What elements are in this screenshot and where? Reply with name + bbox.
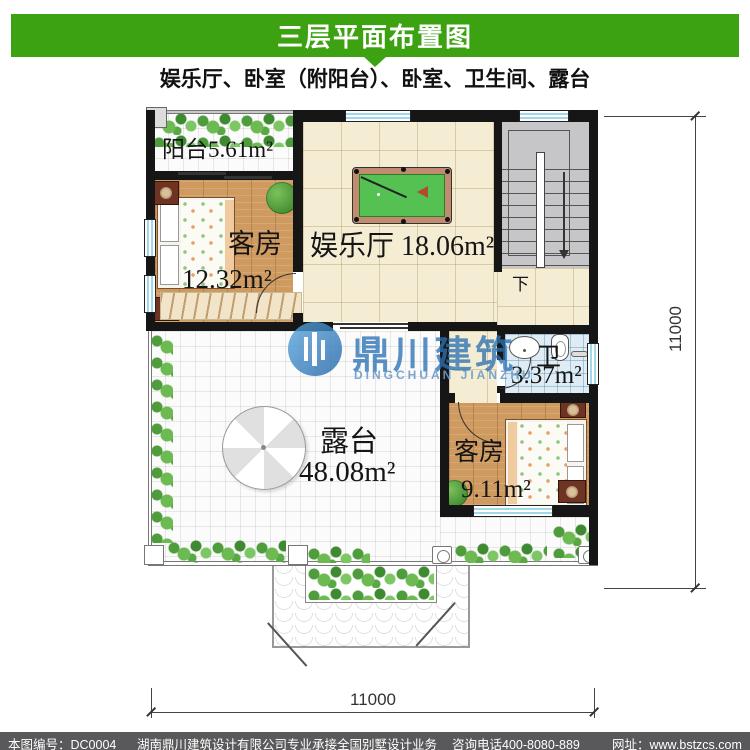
bathroom-window xyxy=(587,343,599,385)
guest1-window-2 xyxy=(144,275,156,313)
wall-guest1-bottom xyxy=(146,322,303,331)
guest1-window-1 xyxy=(144,219,156,257)
bathroom-faucet xyxy=(571,351,588,357)
pool-ball-rack xyxy=(417,186,428,198)
wall-guest1-right-upper xyxy=(293,110,303,272)
floor-plan-page: 三层平面布置图 娱乐厅、卧室（附阳台）、卧室、卫生间、露台 xyxy=(0,0,750,750)
terrace-greenery-bottom-left xyxy=(168,540,286,563)
header-bar: 三层平面布置图 xyxy=(11,14,739,57)
footer-code: 本图编号：DC0004 xyxy=(8,734,116,750)
pool-table xyxy=(352,167,452,224)
stairs-down-label: 下 xyxy=(512,270,529,295)
guest2-window xyxy=(473,505,553,517)
guest1-pillow-2 xyxy=(160,245,179,285)
stairs-arrow-head xyxy=(559,250,569,259)
footer-company: 湖南鼎川建筑设计有限公司专业承接全国别墅设计业务 xyxy=(137,734,437,750)
terrace-name: 露台 xyxy=(320,418,378,460)
guest1-name: 客房 xyxy=(228,222,282,261)
wall-stairs-left xyxy=(494,110,502,272)
page-subtitle: 娱乐厅、卧室（附阳台）、卧室、卫生间、露台 xyxy=(0,63,750,93)
balcony-slider-leaf-2 xyxy=(224,176,272,179)
hall-label: 娱乐厅 18.06m² xyxy=(310,224,494,264)
dim-right-label: 11000 xyxy=(666,306,686,352)
guest2-pillow-1 xyxy=(567,424,584,462)
wall-right xyxy=(589,110,598,565)
stairs-railing xyxy=(536,152,545,268)
footer-phone: 咨询电话400-8080-889 xyxy=(452,734,580,750)
terrace-greenery-left xyxy=(151,333,173,543)
terrace-greenery-bottom-mid xyxy=(308,546,370,563)
balcony-railing-top xyxy=(150,110,296,114)
hall-area: 18.06m² xyxy=(401,231,494,262)
footer-website: 网址：www.bstzcs.com xyxy=(612,734,742,750)
dim-bottom-label: 11000 xyxy=(350,690,396,710)
hall-name: 娱乐厅 xyxy=(310,231,394,262)
terrace-area: 48.08m² xyxy=(299,456,396,489)
dim-bottom-ext-right xyxy=(594,688,595,718)
wall-guest2-top-right xyxy=(500,393,598,403)
terrace-post-1 xyxy=(144,545,164,565)
stairs-treads-left xyxy=(497,158,536,268)
umbrella-center xyxy=(261,445,266,450)
watermark-logo-icon xyxy=(288,322,342,376)
guest2-nightstand-1 xyxy=(560,401,586,418)
stairs-window xyxy=(519,110,569,122)
wall-guest2-top-left xyxy=(440,393,455,403)
balcony-slider-leaf-1 xyxy=(178,172,226,175)
guest2-name: 客房 xyxy=(454,432,504,468)
terrace-greenery-bottom-right xyxy=(455,543,547,563)
cue-ball xyxy=(377,193,380,196)
porch-greenery xyxy=(308,566,434,600)
guest1-area: 12.32m² xyxy=(182,264,272,295)
dim-right-ext-bottom xyxy=(604,588,706,589)
dim-bottom-line xyxy=(151,712,594,713)
hall-window xyxy=(345,110,411,122)
watermark-en: DINGCHUAN JIANZHU xyxy=(354,368,534,382)
dim-bottom-ext-left xyxy=(151,688,152,718)
page-title: 三层平面布置图 xyxy=(277,17,473,54)
guest1-pillow-1 xyxy=(160,202,179,242)
dim-right-line xyxy=(695,116,696,588)
guest1-nightstand-1 xyxy=(153,181,179,205)
terrace-post-2 xyxy=(288,545,308,565)
balcony-label: 阳台5.61m² xyxy=(162,130,273,164)
dim-right-ext-top xyxy=(604,116,706,117)
terrace-column-1 xyxy=(432,546,452,564)
guest2-nightstand-2 xyxy=(558,480,586,503)
guest2-area: 9.11m² xyxy=(461,476,531,504)
stairs-arrow-line xyxy=(563,172,565,250)
footer-bar: 本图编号：DC0004 湖南鼎川建筑设计有限公司专业承接全国别墅设计业务 咨询电… xyxy=(0,732,750,750)
